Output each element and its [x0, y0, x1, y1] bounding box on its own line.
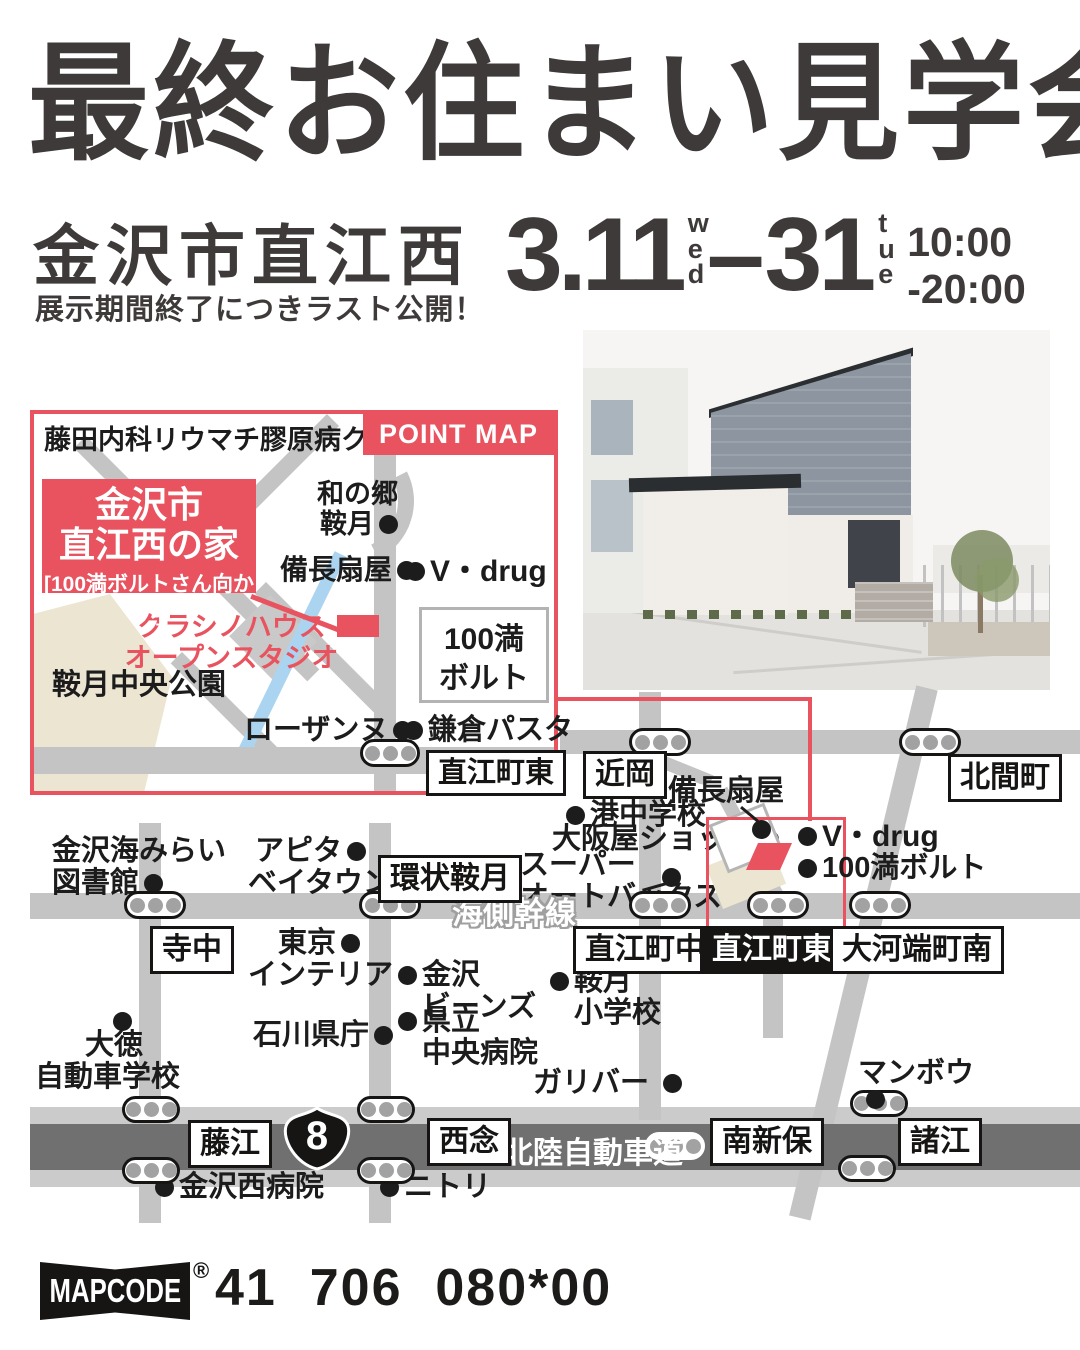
- poi-wanosato: 和の郷 鞍月: [286, 480, 398, 539]
- boxed-label-terachu: 寺中: [150, 926, 234, 974]
- poi-dot-icon: [398, 966, 417, 985]
- photo-plants: [643, 610, 853, 619]
- poi-vdrug-inset-label: V・drug: [430, 555, 547, 588]
- poi-dot-icon: [798, 859, 817, 878]
- photo-neighbor-window: [591, 480, 633, 552]
- poi-hyakuman-main-label: 100満ボルト: [822, 853, 986, 885]
- poi-kencho-label: 石川県庁: [253, 1020, 369, 1052]
- poi-nishi-hospital: 金沢西病院: [155, 1172, 324, 1204]
- poi-hyakuman-inset: 100満 ボルト: [419, 607, 549, 703]
- callout-line-horizontal: [556, 697, 812, 701]
- photo-neighbor-window: [591, 400, 633, 455]
- location-title: 金沢市直江西: [33, 203, 471, 299]
- poi-apita-l1: アピタ: [255, 836, 342, 868]
- date-start-dow: wed: [688, 211, 703, 288]
- point-map-inset: POINT MAP 藤田内科リウマチ膠原病クリニック 金沢市 直江西の家 [10…: [30, 410, 558, 795]
- mapcode-number: 41 706 080*00: [215, 1258, 612, 1318]
- poi-lausanne: ローザンヌ: [244, 715, 412, 747]
- poi-wanosato-l2: 鞍月: [320, 510, 374, 540]
- photo-entrance: [848, 520, 900, 588]
- poi-kenritsu-l1-row: 県立: [398, 1006, 538, 1038]
- poi-vdrug-inset: V・drug: [406, 555, 547, 588]
- route-number: 8: [282, 1114, 352, 1159]
- boxed-label-okawabata: 大河端町南: [830, 926, 1004, 974]
- poi-dot-icon: [662, 868, 681, 887]
- photo-low-wall: [855, 582, 933, 622]
- poi-bincho-main: 備長扇屋: [668, 776, 784, 808]
- boxed-label-naoe-higashi-inset: 直江町東: [426, 750, 566, 796]
- poi-library-l2: 図書館: [52, 868, 139, 900]
- traffic-light-icon: [629, 891, 691, 919]
- boxed-label-minami-shinbo: 南新保: [710, 1118, 824, 1166]
- boxed-label-naoe-higashi: 直江町東: [700, 926, 844, 974]
- poi-beans-l1: 金沢: [422, 960, 480, 992]
- poi-library-l1: 金沢海みらい: [52, 836, 226, 868]
- poi-daitoku-l2: 自動車学校: [35, 1062, 143, 1094]
- poi-daitoku: 大徳 自動車学校: [35, 1030, 143, 1094]
- open-hours: 10:00 -20:00: [907, 219, 1026, 313]
- poi-gulliver-label: ガリバー: [533, 1068, 649, 1100]
- poi-dot-icon: [347, 842, 366, 861]
- poi-hyakuman-inset-l1: 100満: [422, 620, 546, 659]
- boxed-label-naoe-naka: 直江町中: [573, 926, 717, 974]
- traffic-light-icon: [849, 891, 911, 919]
- poi-dot-icon: [798, 827, 817, 846]
- page-title: 最終お住まい見学会: [28, 40, 1080, 168]
- poi-bincho-label: 備長扇屋: [280, 555, 392, 586]
- photo-tree-foliage: [975, 558, 1019, 602]
- event-date: 3.11 wed – 31 tue 10:00 -20:00: [505, 203, 1026, 313]
- traffic-light-icon: [357, 1096, 415, 1123]
- poi-autobacs-l1: スーパー: [520, 850, 722, 882]
- mapcode-logo: MAPCODE: [40, 1262, 190, 1320]
- poi-dot-icon: [550, 972, 569, 991]
- poi-kencho: 石川県庁: [253, 1020, 393, 1052]
- poi-hyakuman-main: 100満ボルト: [798, 853, 986, 885]
- poi-tokyo-l1-row: 東京: [248, 928, 360, 960]
- poi-wanosato-l1: 和の郷: [286, 480, 398, 510]
- poi-kenritsu-l1: 県立: [422, 1006, 480, 1038]
- venue-note: [100満ボルトさん向かい]: [42, 568, 256, 628]
- date-start: 3.11: [505, 203, 682, 307]
- mapcode-logo-text: MAPCODE: [49, 1272, 181, 1310]
- boxed-label-fujie: 藤江: [188, 1120, 272, 1168]
- poi-tokyo-interior: 東京 インテリア: [248, 928, 360, 992]
- registered-mark: ®: [193, 1258, 209, 1284]
- poi-dot-icon: [866, 1090, 885, 1109]
- poi-dot-icon: [404, 721, 423, 740]
- poi-nitori-label: ニトリ: [404, 1172, 491, 1204]
- poi-dot-icon: [341, 934, 360, 953]
- date-end: 31: [765, 203, 873, 307]
- poi-apita-l1-row: アピタ: [248, 836, 366, 868]
- house-photo: [583, 330, 1050, 690]
- poi-apita: アピタ ベイタウン: [248, 836, 366, 900]
- traffic-light-icon: [838, 1155, 896, 1182]
- poi-dot-icon: [379, 515, 398, 534]
- poi-kamakura: 鎌倉パスタ: [404, 715, 573, 747]
- poi-kenritsu-hospital: 県立 中央病院: [398, 1006, 538, 1070]
- poi-dot-icon: [374, 1026, 393, 1045]
- open-hours-to: -20:00: [907, 266, 1026, 313]
- open-hours-from: 10:00: [907, 219, 1026, 266]
- traffic-light-icon: [122, 1096, 180, 1123]
- boxed-label-moroe: 諸江: [898, 1118, 982, 1166]
- poi-dot-icon: [663, 1074, 682, 1093]
- poi-hyakuman-inset-l2: ボルト: [422, 659, 546, 698]
- poi-kenritsu-l2: 中央病院: [422, 1038, 538, 1070]
- traffic-light-icon: [124, 891, 186, 919]
- poi-bincho: 備長扇屋: [280, 555, 416, 586]
- poi-vdrug-main: V・drug: [798, 820, 939, 853]
- poi-manbo: マンボウ: [858, 1058, 974, 1090]
- poi-kuratsuki-shou: 鞍月 小学校: [550, 966, 661, 1030]
- road-label-hokuriku: 北陸自動車道: [503, 1128, 683, 1172]
- traffic-light-icon: [747, 891, 809, 919]
- date-dash: –: [707, 203, 765, 307]
- poi-kuratsuki-l2: 小学校: [574, 998, 661, 1030]
- poi-daitoku-l1: 大徳: [35, 1030, 143, 1062]
- flyer: 最終お住まい見学会 金沢市直江西 展示期間終了につきラスト公開！ 3.11 we…: [0, 0, 1080, 1350]
- poi-dot-icon: [398, 1012, 417, 1031]
- boxed-label-kitamamachi: 北間町: [948, 754, 1062, 802]
- traffic-light-icon: [357, 1157, 415, 1184]
- traffic-light-icon: [122, 1157, 180, 1184]
- poi-gulliver: ガリバー: [533, 1068, 682, 1100]
- poi-beans-l1-row: 金沢: [398, 960, 536, 992]
- boxed-label-sainen: 西念: [427, 1118, 511, 1166]
- poi-tokyo-l2: インテリア: [248, 960, 360, 992]
- poi-tokyo-l1: 東京: [278, 928, 336, 960]
- boxed-label-kanjo-kuratsuki: 環状鞍月: [378, 855, 522, 903]
- callout-line-vertical: [808, 697, 812, 821]
- venue-line2: 直江西の家: [42, 525, 256, 565]
- tagline: 展示期間終了につきラスト公開！: [35, 286, 484, 328]
- poi-park-label: 鞍月中央公園: [52, 670, 226, 702]
- poi-dot-icon: [752, 820, 771, 839]
- venue-line1: 金沢市: [42, 485, 256, 525]
- poi-apita-l2: ベイタウン: [248, 868, 366, 900]
- date-end-dow: tue: [878, 211, 893, 288]
- poi-nishi-hospital-label: 金沢西病院: [179, 1172, 324, 1204]
- route-8-shield: 8: [282, 1106, 352, 1172]
- photo-house-lower-left: [643, 485, 788, 615]
- poi-lausanne-label: ローザンヌ: [244, 715, 388, 747]
- boxed-label-chikaoka: 近岡: [583, 751, 667, 799]
- poi-vdrug-main-label: V・drug: [822, 820, 939, 853]
- poi-dot-icon: [406, 562, 425, 581]
- venue-callout: 金沢市 直江西の家 [100満ボルトさん向かい]: [42, 479, 256, 593]
- photo-gravel: [928, 622, 1050, 656]
- poi-kamakura-label: 鎌倉パスタ: [428, 715, 573, 747]
- point-map-badge: POINT MAP: [363, 414, 554, 455]
- poi-wanosato-l2-row: 鞍月: [286, 510, 398, 540]
- traffic-light-icon: [899, 728, 961, 756]
